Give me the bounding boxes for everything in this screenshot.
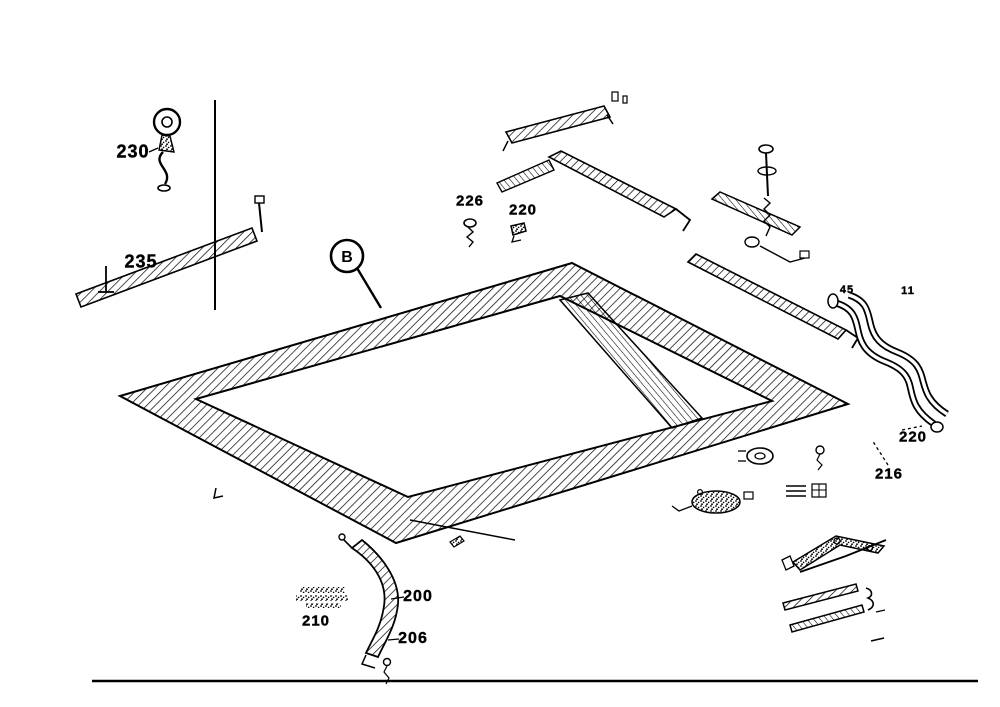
callout-b-letter: B: [341, 249, 353, 266]
fastener-row-right: [672, 446, 826, 513]
clip-part-220: [511, 223, 526, 242]
diagram-line-art: B: [0, 0, 1000, 707]
callout-b: B: [331, 240, 381, 308]
drain-hoses: [828, 294, 947, 465]
parts-diagram: B: [0, 0, 1000, 707]
illegible-note-block: [296, 587, 348, 608]
crank-handle-part: [149, 109, 180, 191]
torsion-bar-part: [76, 196, 264, 307]
wind-deflector-assembly: [497, 92, 690, 231]
slide-rails-part: [783, 584, 885, 641]
deflector-arm-part: [782, 536, 886, 572]
screw-part-226: [464, 219, 476, 247]
support-strut-part: [339, 534, 404, 684]
bolt-assembly: [712, 145, 809, 262]
